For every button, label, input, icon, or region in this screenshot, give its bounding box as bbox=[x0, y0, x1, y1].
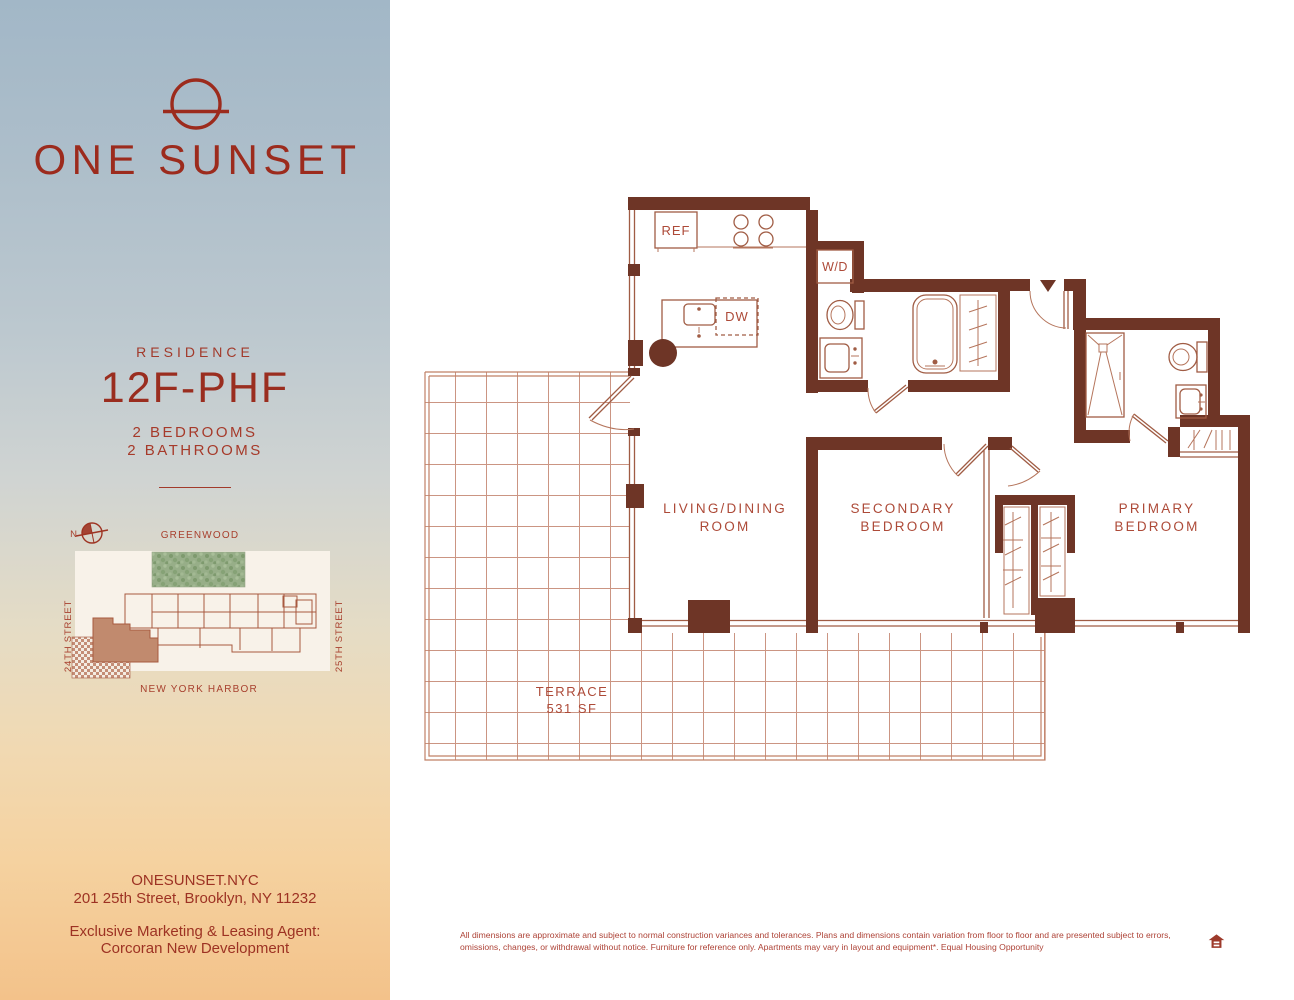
toilet-tank bbox=[855, 301, 864, 329]
terrace-label: TERRACE bbox=[536, 684, 609, 699]
terrace-sf: 531 SF bbox=[547, 701, 598, 716]
secondary-label-1: SECONDARY bbox=[850, 501, 955, 516]
flyer-page: ONE SUNSET RESIDENCE 12F-PHF 2 BEDROOMS … bbox=[0, 0, 1294, 1000]
bath-door bbox=[1129, 414, 1168, 443]
room-labels: LIVING/DINING ROOM SECONDARY BEDROOM PRI… bbox=[663, 501, 1200, 534]
disclaimer: All dimensions are approximate and subje… bbox=[460, 929, 1200, 953]
primary-label-2: BEDROOM bbox=[1114, 519, 1199, 534]
secondary-bedroom bbox=[944, 444, 989, 618]
floor-plan: TERRACE 531 SF bbox=[0, 0, 1294, 1000]
ref-label: REF bbox=[662, 223, 691, 238]
living-label-1: LIVING/DINING bbox=[663, 501, 787, 516]
terrace: TERRACE 531 SF bbox=[425, 372, 1045, 760]
shower bbox=[1086, 333, 1124, 417]
vestibule-door-leaf bbox=[1010, 446, 1040, 472]
bathroom-door bbox=[868, 385, 908, 413]
island-sink bbox=[684, 304, 715, 325]
primary-closet bbox=[1180, 430, 1238, 457]
column bbox=[649, 339, 677, 367]
window-walls bbox=[630, 210, 1239, 626]
disclaimer-line2: omissions, changes, or withdrawal withou… bbox=[460, 941, 1200, 953]
secondary-label-2: BEDROOM bbox=[860, 519, 945, 534]
disclaimer-line1: All dimensions are approximate and subje… bbox=[460, 929, 1200, 941]
bedroom-door-leaf bbox=[956, 444, 988, 476]
toilet-tank bbox=[1197, 342, 1207, 372]
stove-burners bbox=[733, 215, 773, 248]
dw-label: DW bbox=[725, 309, 749, 324]
living-label-2: ROOM bbox=[700, 519, 751, 534]
secondary-bathroom bbox=[820, 295, 996, 413]
linen-closet bbox=[960, 295, 996, 371]
walls bbox=[626, 197, 1250, 633]
primary-label-1: PRIMARY bbox=[1119, 501, 1196, 516]
entry bbox=[1008, 291, 1068, 486]
entry-arrow-icon bbox=[1040, 280, 1056, 292]
kitchen-fixtures: REF DW W/D bbox=[649, 212, 853, 367]
entry-door-leaf bbox=[1064, 291, 1068, 329]
wd-label: W/D bbox=[822, 260, 848, 274]
equal-housing-icon bbox=[1208, 933, 1225, 950]
sink bbox=[1180, 389, 1200, 414]
sink bbox=[825, 344, 849, 372]
